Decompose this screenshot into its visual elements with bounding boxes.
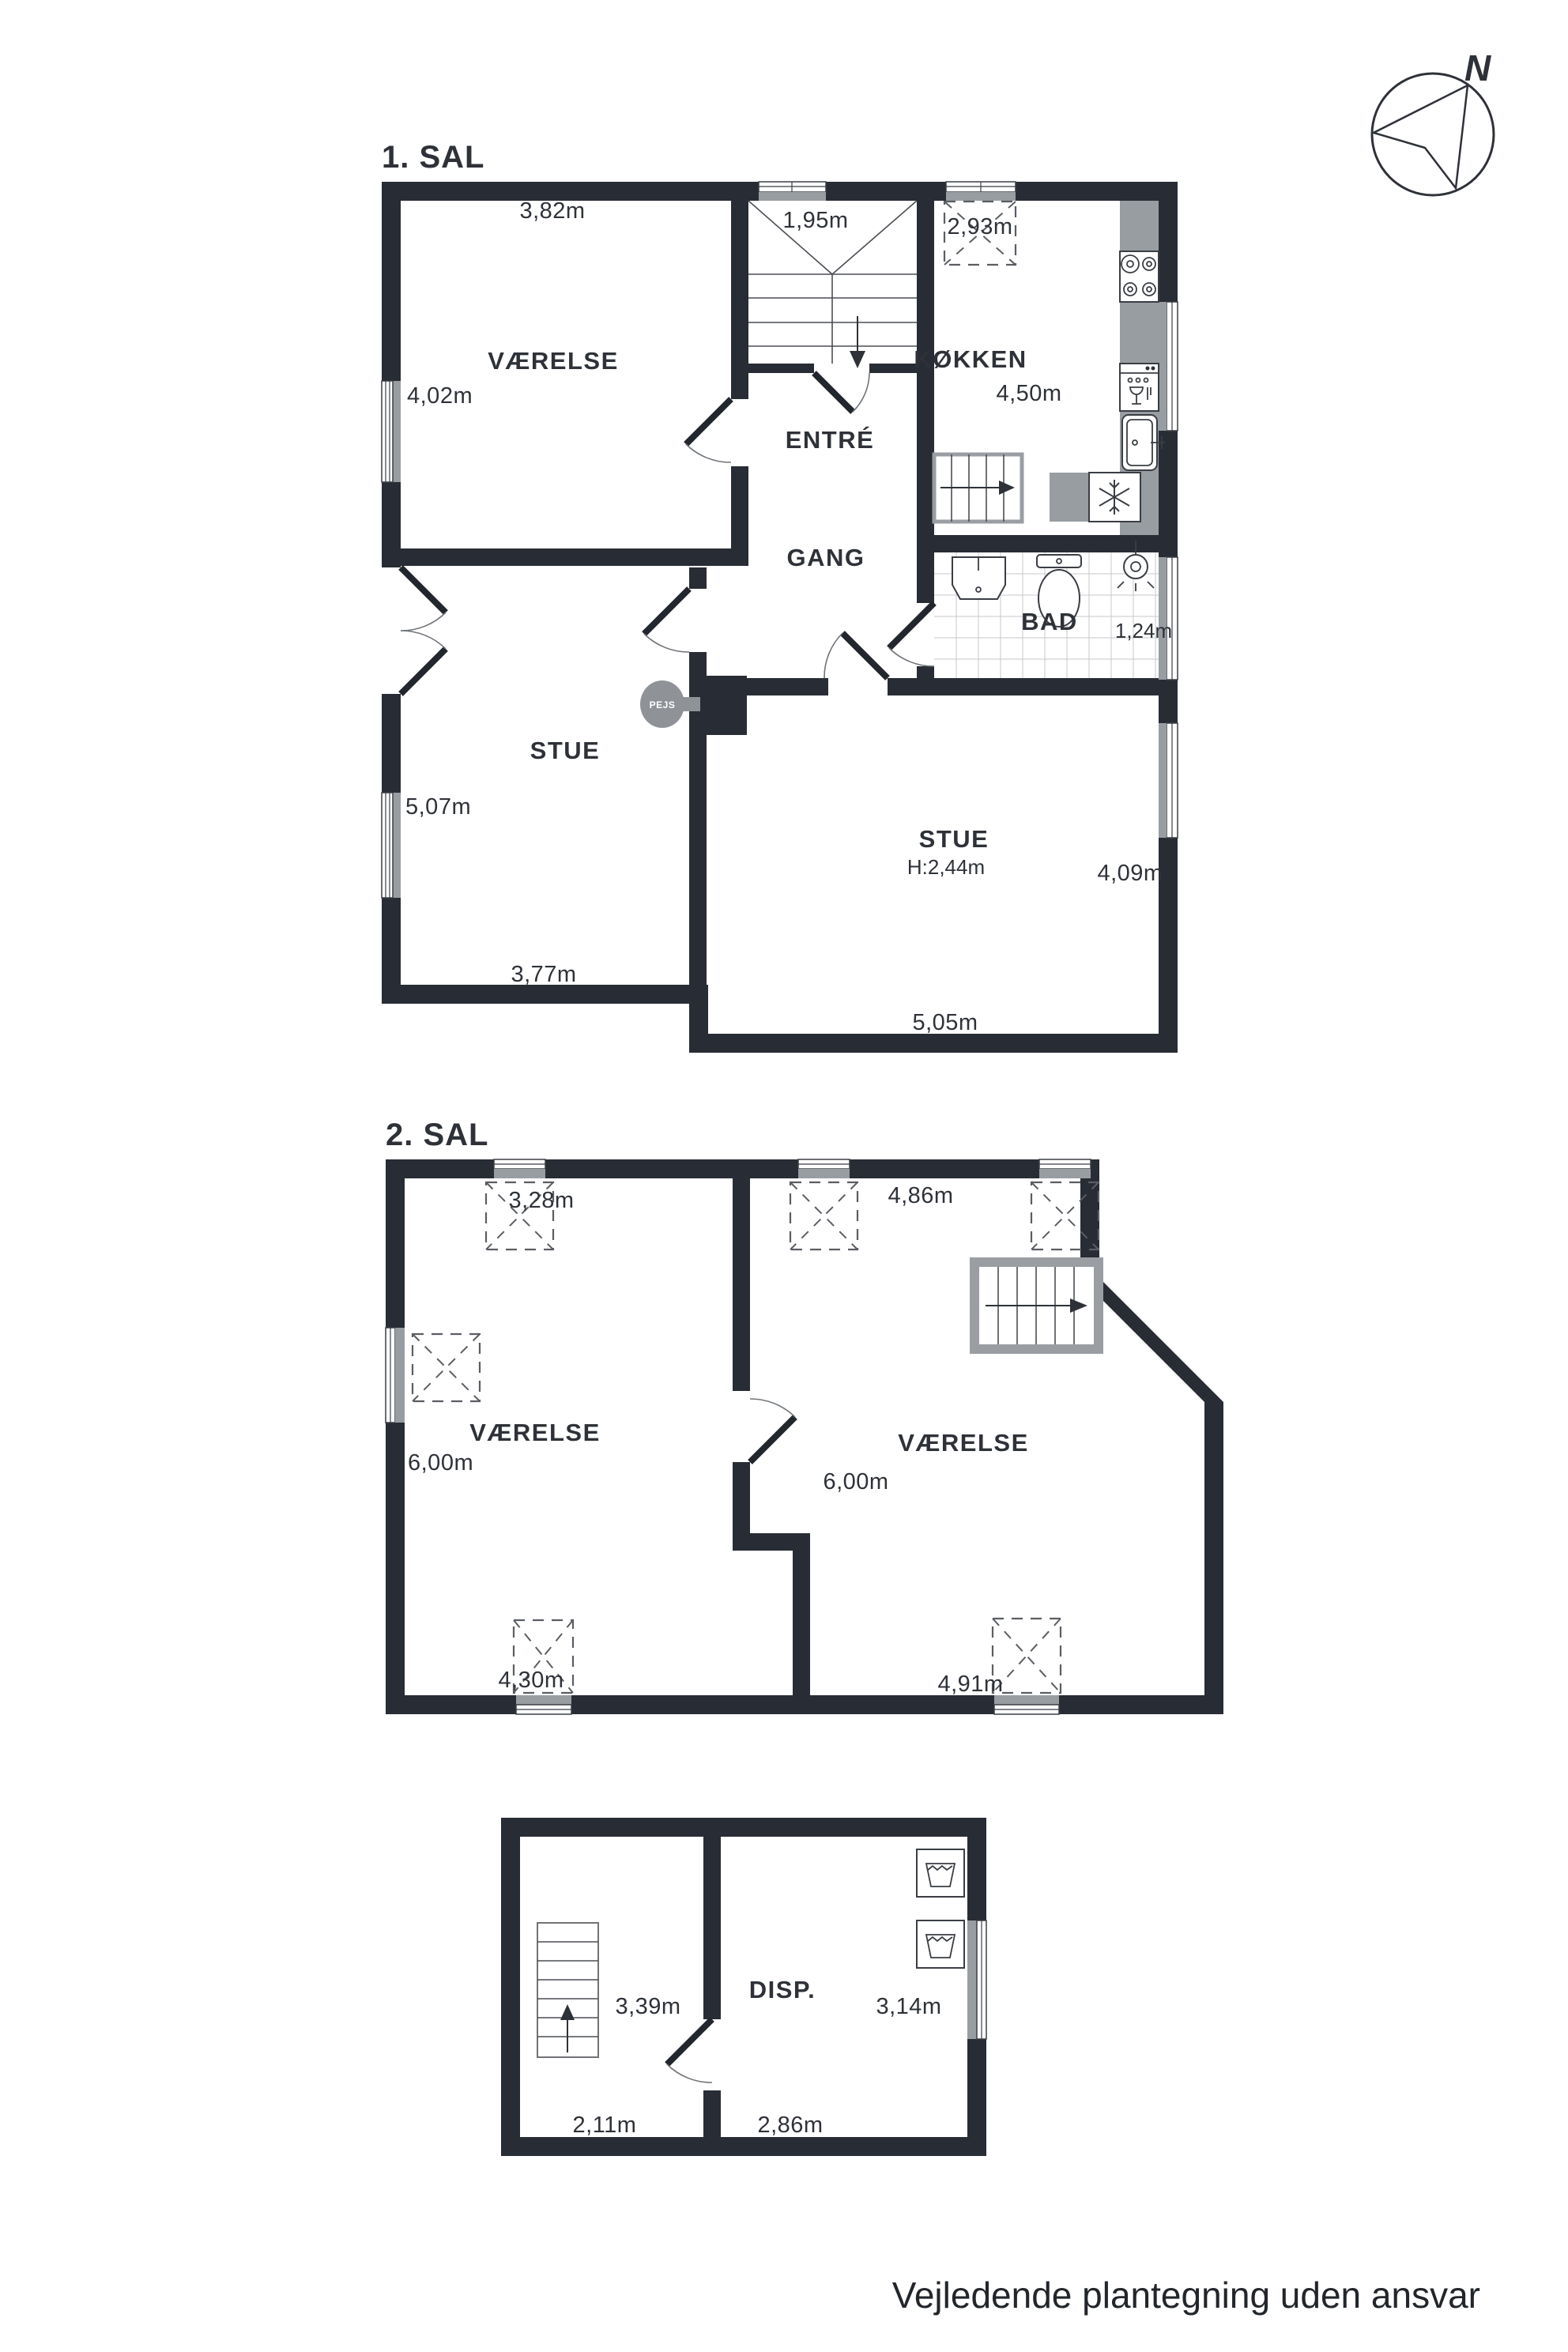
- dim-5-07: 5,07m: [405, 794, 471, 820]
- room-label-stue-left: STUE: [530, 737, 601, 764]
- dim-6-00-left: 6,00m: [408, 1450, 473, 1476]
- floor1-title: 1. SAL: [382, 140, 484, 175]
- door-stairwell: [814, 373, 869, 412]
- washing-machine-icon-1: [917, 1849, 964, 1897]
- door-f2-partition: [750, 1399, 795, 1462]
- room-label-vaerelse-right: VÆRELSE: [898, 1429, 1029, 1457]
- floor2-plan: 2. SAL: [386, 1118, 1223, 1714]
- room-label-vaerelse-1sal: VÆRELSE: [488, 347, 619, 375]
- room-label-stue-right: STUE: [919, 825, 989, 853]
- dim-2-93: 2,93m: [947, 214, 1012, 239]
- window-f2-bottom-left: [516, 1695, 571, 1714]
- compass-north-icon: N: [1372, 47, 1494, 195]
- room-label-koekken: KØKKEN: [914, 345, 1027, 373]
- dim-3-82: 3,82m: [519, 198, 585, 224]
- room-label-entre: ENTRÉ: [786, 426, 875, 454]
- footer-disclaimer: Vejledende plantegning uden ansvar: [892, 2275, 1480, 2316]
- dishwasher-icon: [1120, 364, 1159, 411]
- room-label-gang: GANG: [787, 544, 865, 571]
- kitchen-counter: [1050, 201, 1165, 535]
- fridge-icon: [1050, 473, 1140, 522]
- window-f2-top-a: [494, 1159, 545, 1178]
- sink-bad-icon: [952, 557, 1005, 599]
- dim-4-86: 4,86m: [888, 1183, 953, 1208]
- stairs-f2-icon: [970, 1257, 1103, 1354]
- dim-4-09: 4,09m: [1097, 861, 1163, 886]
- window-f2-bottom-right: [994, 1695, 1059, 1714]
- stairs-f3-icon: [537, 1923, 598, 2057]
- window-left-lower: [382, 793, 401, 898]
- dim-3-39: 3,39m: [615, 1994, 680, 2019]
- window-top-stair: [759, 182, 826, 201]
- room-label-bad: BAD: [1021, 608, 1078, 635]
- door-bad: [889, 603, 934, 666]
- dim-2-11: 2,11m: [573, 2113, 637, 2138]
- floorplan-page: { "wall_color": "#282c34", "footer": "Ve…: [0, 0, 1568, 2352]
- stairs-down-icon: [934, 454, 1022, 522]
- washing-machine-icon-2: [917, 1920, 964, 1968]
- stove-icon: [1120, 251, 1159, 302]
- dim-1-24: 1,24m: [1115, 619, 1172, 643]
- floor1-doors: [401, 373, 934, 694]
- dim-3-77: 3,77m: [511, 962, 576, 987]
- window-left-upper: [382, 381, 401, 482]
- dim-2-86: 2,86m: [757, 2113, 823, 2138]
- room-label-vaerelse-left: VÆRELSE: [469, 1419, 601, 1446]
- dim-3-14: 3,14m: [876, 1994, 941, 2019]
- window-f3-right: [967, 1920, 986, 2039]
- door-stue-left: [644, 589, 689, 652]
- dim-4-30: 4,30m: [498, 1668, 563, 1693]
- window-f2-top-c: [1039, 1159, 1091, 1178]
- fireplace-label: PEJS: [650, 699, 676, 710]
- dim-h-2-44: H:2,44m: [907, 855, 985, 879]
- dim-6-00-right: 6,00m: [823, 1469, 888, 1494]
- dim-5-05: 5,05m: [912, 1010, 978, 1035]
- door-vaerelse: [686, 399, 731, 462]
- window-right-kitchen: [1159, 302, 1178, 431]
- door-stue-right: [824, 633, 888, 678]
- window-f2-top-b: [798, 1159, 850, 1178]
- room-label-disp: DISP.: [749, 1976, 816, 2003]
- dim-4-02: 4,02m: [407, 383, 473, 409]
- door-f3-partition: [667, 2019, 712, 2082]
- door-french-left: [401, 567, 446, 694]
- dim-1-95: 1,95m: [782, 208, 848, 233]
- floor3-plan: 3,39m DISP. 3,14m 2,11m 2,86m: [501, 1818, 986, 2156]
- window-top-kitchen: [946, 182, 1016, 201]
- dim-4-91: 4,91m: [937, 1672, 1003, 1697]
- floor2-title: 2. SAL: [386, 1118, 488, 1152]
- window-f2-left: [386, 1328, 405, 1423]
- skylight-box-left: [413, 1334, 480, 1401]
- dim-3-28: 3,28m: [508, 1188, 574, 1213]
- floor1-plan: 1. SAL: [382, 140, 1178, 1053]
- skylight-box-b: [790, 1182, 857, 1249]
- window-right-bad: [1159, 723, 1178, 838]
- compass-north-label: N: [1464, 47, 1491, 89]
- dim-4-50: 4,50m: [996, 381, 1061, 406]
